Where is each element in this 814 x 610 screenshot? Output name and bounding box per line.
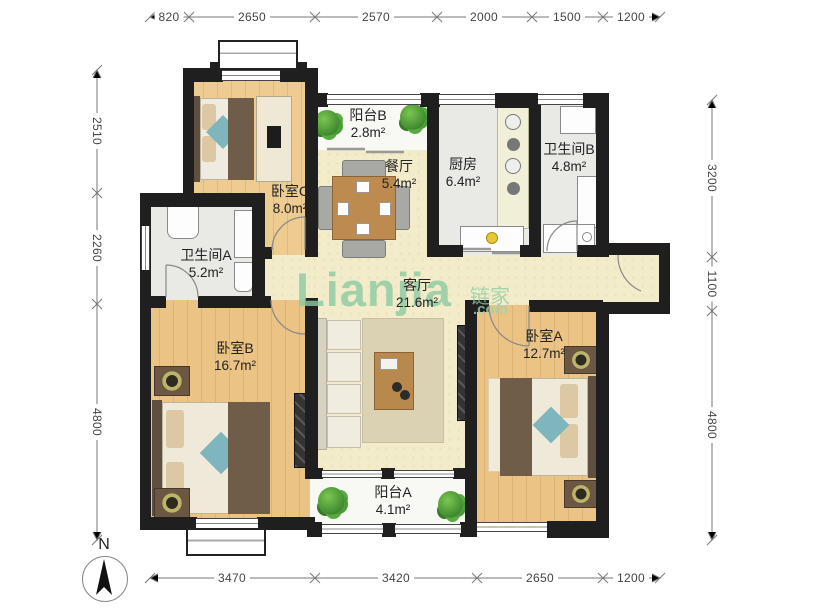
room-label-bedroom-b: 卧室B16.7m² — [214, 340, 256, 374]
wall — [596, 100, 609, 257]
dim-label-bottom: 1200 — [613, 571, 649, 585]
dim-label-bottom: 2650 — [522, 571, 558, 585]
bay-window — [186, 528, 266, 556]
living-decor — [400, 390, 410, 400]
window — [322, 470, 382, 478]
wall — [460, 522, 477, 537]
wall — [529, 105, 541, 257]
wall — [596, 302, 609, 538]
wall — [381, 468, 395, 479]
dim-label-right: 4800 — [705, 407, 719, 443]
wall — [305, 70, 318, 257]
dining-chair — [342, 240, 386, 258]
dim-label-bottom: 3470 — [214, 571, 250, 585]
dim-label-left: 2260 — [90, 230, 104, 266]
window — [322, 524, 383, 534]
living-sofa-back — [317, 318, 327, 450]
window — [395, 524, 461, 534]
living-sofa-cushion — [327, 416, 361, 448]
dim-label-top: 820 — [155, 10, 184, 24]
wall — [529, 300, 603, 312]
room-label-dining: 餐厅5.4m² — [382, 158, 417, 192]
window — [327, 94, 421, 105]
window — [141, 226, 150, 270]
kitchen-sink — [505, 114, 521, 130]
dim-label-bottom: 3420 — [378, 571, 414, 585]
plant — [438, 491, 463, 518]
wall — [382, 523, 396, 537]
wall — [140, 193, 265, 207]
dim-label-top: 1500 — [549, 10, 585, 24]
wall — [305, 468, 323, 479]
bedroom-b-speaker — [160, 491, 184, 515]
compass-north-label: N — [98, 536, 110, 554]
dim-label-top: 1200 — [613, 10, 649, 24]
living-tray — [380, 358, 398, 370]
bay-window — [218, 40, 298, 70]
wall — [520, 245, 541, 257]
wall — [596, 302, 670, 314]
dim-label-left: 2510 — [90, 113, 104, 149]
bedroom-c-blanket — [228, 98, 254, 180]
wall — [427, 98, 439, 255]
room-label-bathroom-a: 卫生间A5.2m² — [180, 247, 231, 281]
bedroom-a-speaker — [570, 483, 592, 505]
wall — [465, 300, 477, 525]
room-label-kitchen: 厨房6.4m² — [446, 156, 481, 190]
kitchen-sink — [505, 158, 521, 174]
dim-label-left: 4800 — [90, 404, 104, 440]
dining-plate — [337, 202, 349, 216]
room-label-bedroom-c: 卧室C8.0m² — [271, 183, 309, 217]
dining-plate — [379, 202, 391, 216]
bedroom-b-pillow — [166, 410, 184, 448]
dim-label-top: 2570 — [358, 10, 394, 24]
wall — [252, 247, 272, 259]
bedroom-a-blanket — [500, 378, 532, 476]
wall — [183, 68, 194, 200]
wall — [198, 296, 271, 308]
dim-label-top: 2000 — [466, 10, 502, 24]
compass-circle — [82, 556, 128, 602]
living-sofa-cushion — [327, 320, 361, 350]
watermark-domain: .com — [473, 301, 508, 318]
bedroom-b-blanket — [228, 402, 270, 514]
wall — [305, 298, 318, 472]
bathroom-b-vanity — [577, 176, 597, 228]
kitchen-burner — [507, 182, 520, 195]
dim-label-right: 3200 — [705, 160, 719, 196]
dim-label-top: 2650 — [234, 10, 270, 24]
dim-label-right: 1100 — [705, 266, 719, 301]
room-label-living: 客厅21.6m² — [396, 277, 438, 311]
dining-plate — [356, 181, 370, 193]
dining-plate — [356, 223, 370, 235]
wall — [140, 295, 151, 522]
room-label-bedroom-a: 卧室A12.7m² — [523, 328, 565, 362]
living-sofa-cushion — [327, 352, 361, 382]
wall — [427, 245, 463, 257]
bathroom-b-washer — [560, 106, 596, 134]
living-sofa-cushion — [327, 384, 361, 414]
window — [394, 470, 454, 478]
window — [439, 94, 495, 105]
floor-plan: 820 2650 2570 2000 1500 1200 3470 3420 2… — [0, 0, 814, 610]
bedroom-a-pillow — [560, 384, 578, 418]
room-label-balcony-a: 阳台A4.1m² — [374, 484, 411, 518]
room-label-balcony-b: 阳台B2.8m² — [349, 107, 386, 141]
window — [222, 70, 280, 81]
plant — [318, 487, 345, 515]
window — [477, 522, 547, 532]
kitchen-burner — [507, 138, 520, 151]
plant — [400, 104, 426, 130]
bathroom-a-toilet — [234, 262, 253, 292]
window — [538, 94, 583, 105]
bedroom-a-speaker — [570, 349, 592, 371]
wall — [307, 522, 322, 537]
bathroom-a-vanity — [234, 210, 253, 258]
wall — [547, 521, 609, 538]
bathroom-b-shower-head — [582, 232, 592, 242]
bedroom-c-tv — [267, 126, 281, 148]
kitchen-fruit — [486, 232, 498, 244]
room-label-bathroom-b: 卫生间B4.8m² — [543, 141, 594, 175]
bedroom-b-speaker — [160, 369, 184, 393]
